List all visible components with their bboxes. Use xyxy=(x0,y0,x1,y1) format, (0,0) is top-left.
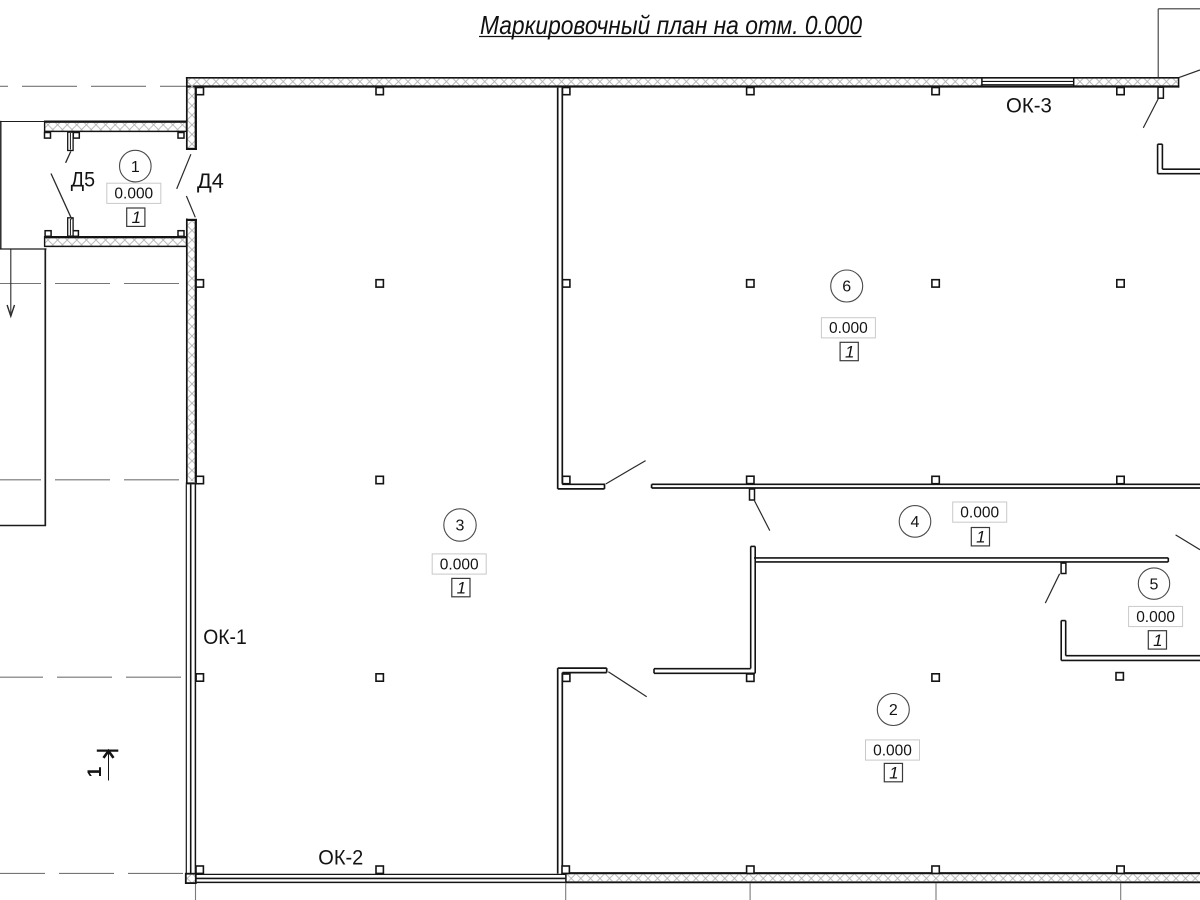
svg-text:Д4: Д4 xyxy=(197,170,224,193)
svg-text:ОК-3: ОК-3 xyxy=(1006,95,1052,118)
svg-text:1: 1 xyxy=(845,342,854,361)
svg-text:Д5: Д5 xyxy=(71,168,95,191)
svg-text:5: 5 xyxy=(1150,576,1159,593)
svg-text:1: 1 xyxy=(85,766,106,777)
svg-text:1: 1 xyxy=(889,764,898,783)
svg-text:1: 1 xyxy=(457,579,466,598)
svg-text:ОК-1: ОК-1 xyxy=(203,626,247,649)
svg-text:6: 6 xyxy=(842,279,851,296)
svg-text:0.000: 0.000 xyxy=(829,320,868,337)
svg-text:1: 1 xyxy=(132,208,141,227)
svg-text:0.000: 0.000 xyxy=(440,556,479,573)
svg-text:Маркировочный план на отм. 0.0: Маркировочный план на отм. 0.000 xyxy=(480,10,862,40)
svg-text:ОК-2: ОК-2 xyxy=(318,847,363,870)
svg-text:3: 3 xyxy=(456,518,465,535)
svg-text:0.000: 0.000 xyxy=(114,186,153,203)
svg-text:4: 4 xyxy=(911,514,920,531)
svg-text:1: 1 xyxy=(131,159,140,176)
svg-text:1: 1 xyxy=(1153,631,1162,650)
svg-text:2: 2 xyxy=(889,702,898,719)
svg-text:0.000: 0.000 xyxy=(873,742,912,759)
svg-text:1: 1 xyxy=(976,528,985,547)
svg-text:0.000: 0.000 xyxy=(1136,609,1175,626)
svg-text:0.000: 0.000 xyxy=(960,505,999,522)
